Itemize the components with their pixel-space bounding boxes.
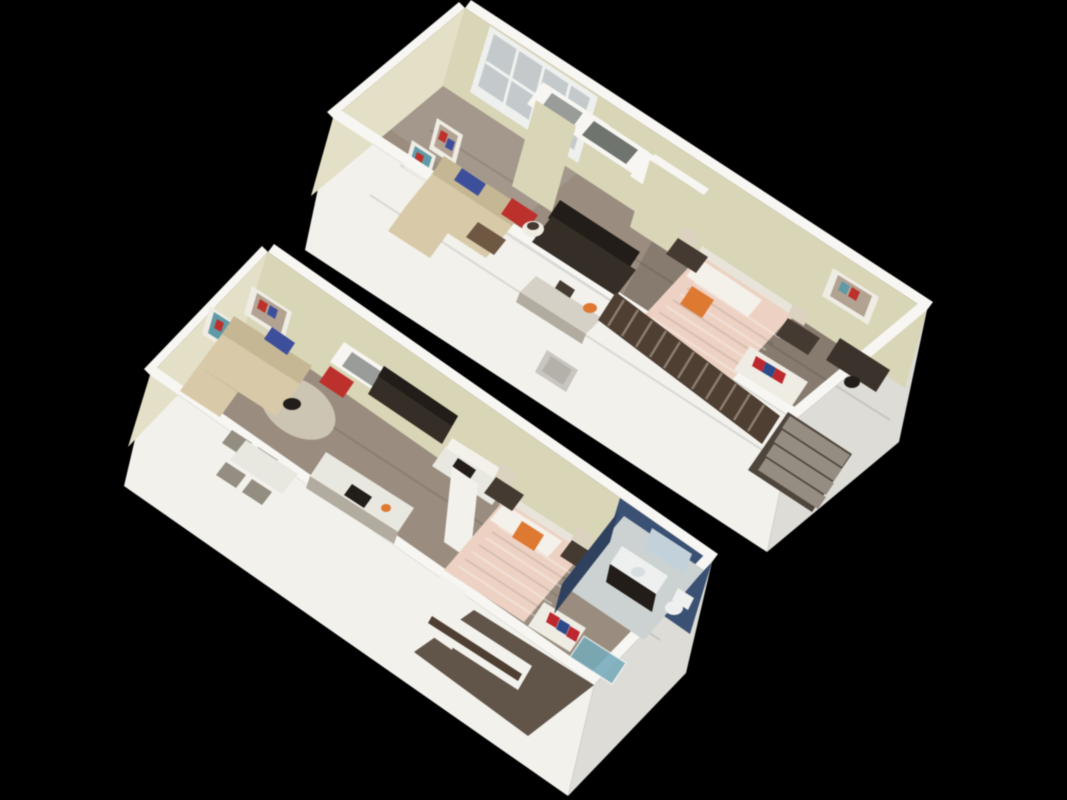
desk-chair [844,376,860,388]
side-table-top-item [527,222,539,230]
coffee-table-item [283,398,301,410]
island-item-orange [381,504,391,512]
vanity-sink [631,567,645,577]
toilet-bowl [665,601,683,615]
floor-plan-canvas [0,0,1067,800]
kitchen-stool [583,303,597,313]
